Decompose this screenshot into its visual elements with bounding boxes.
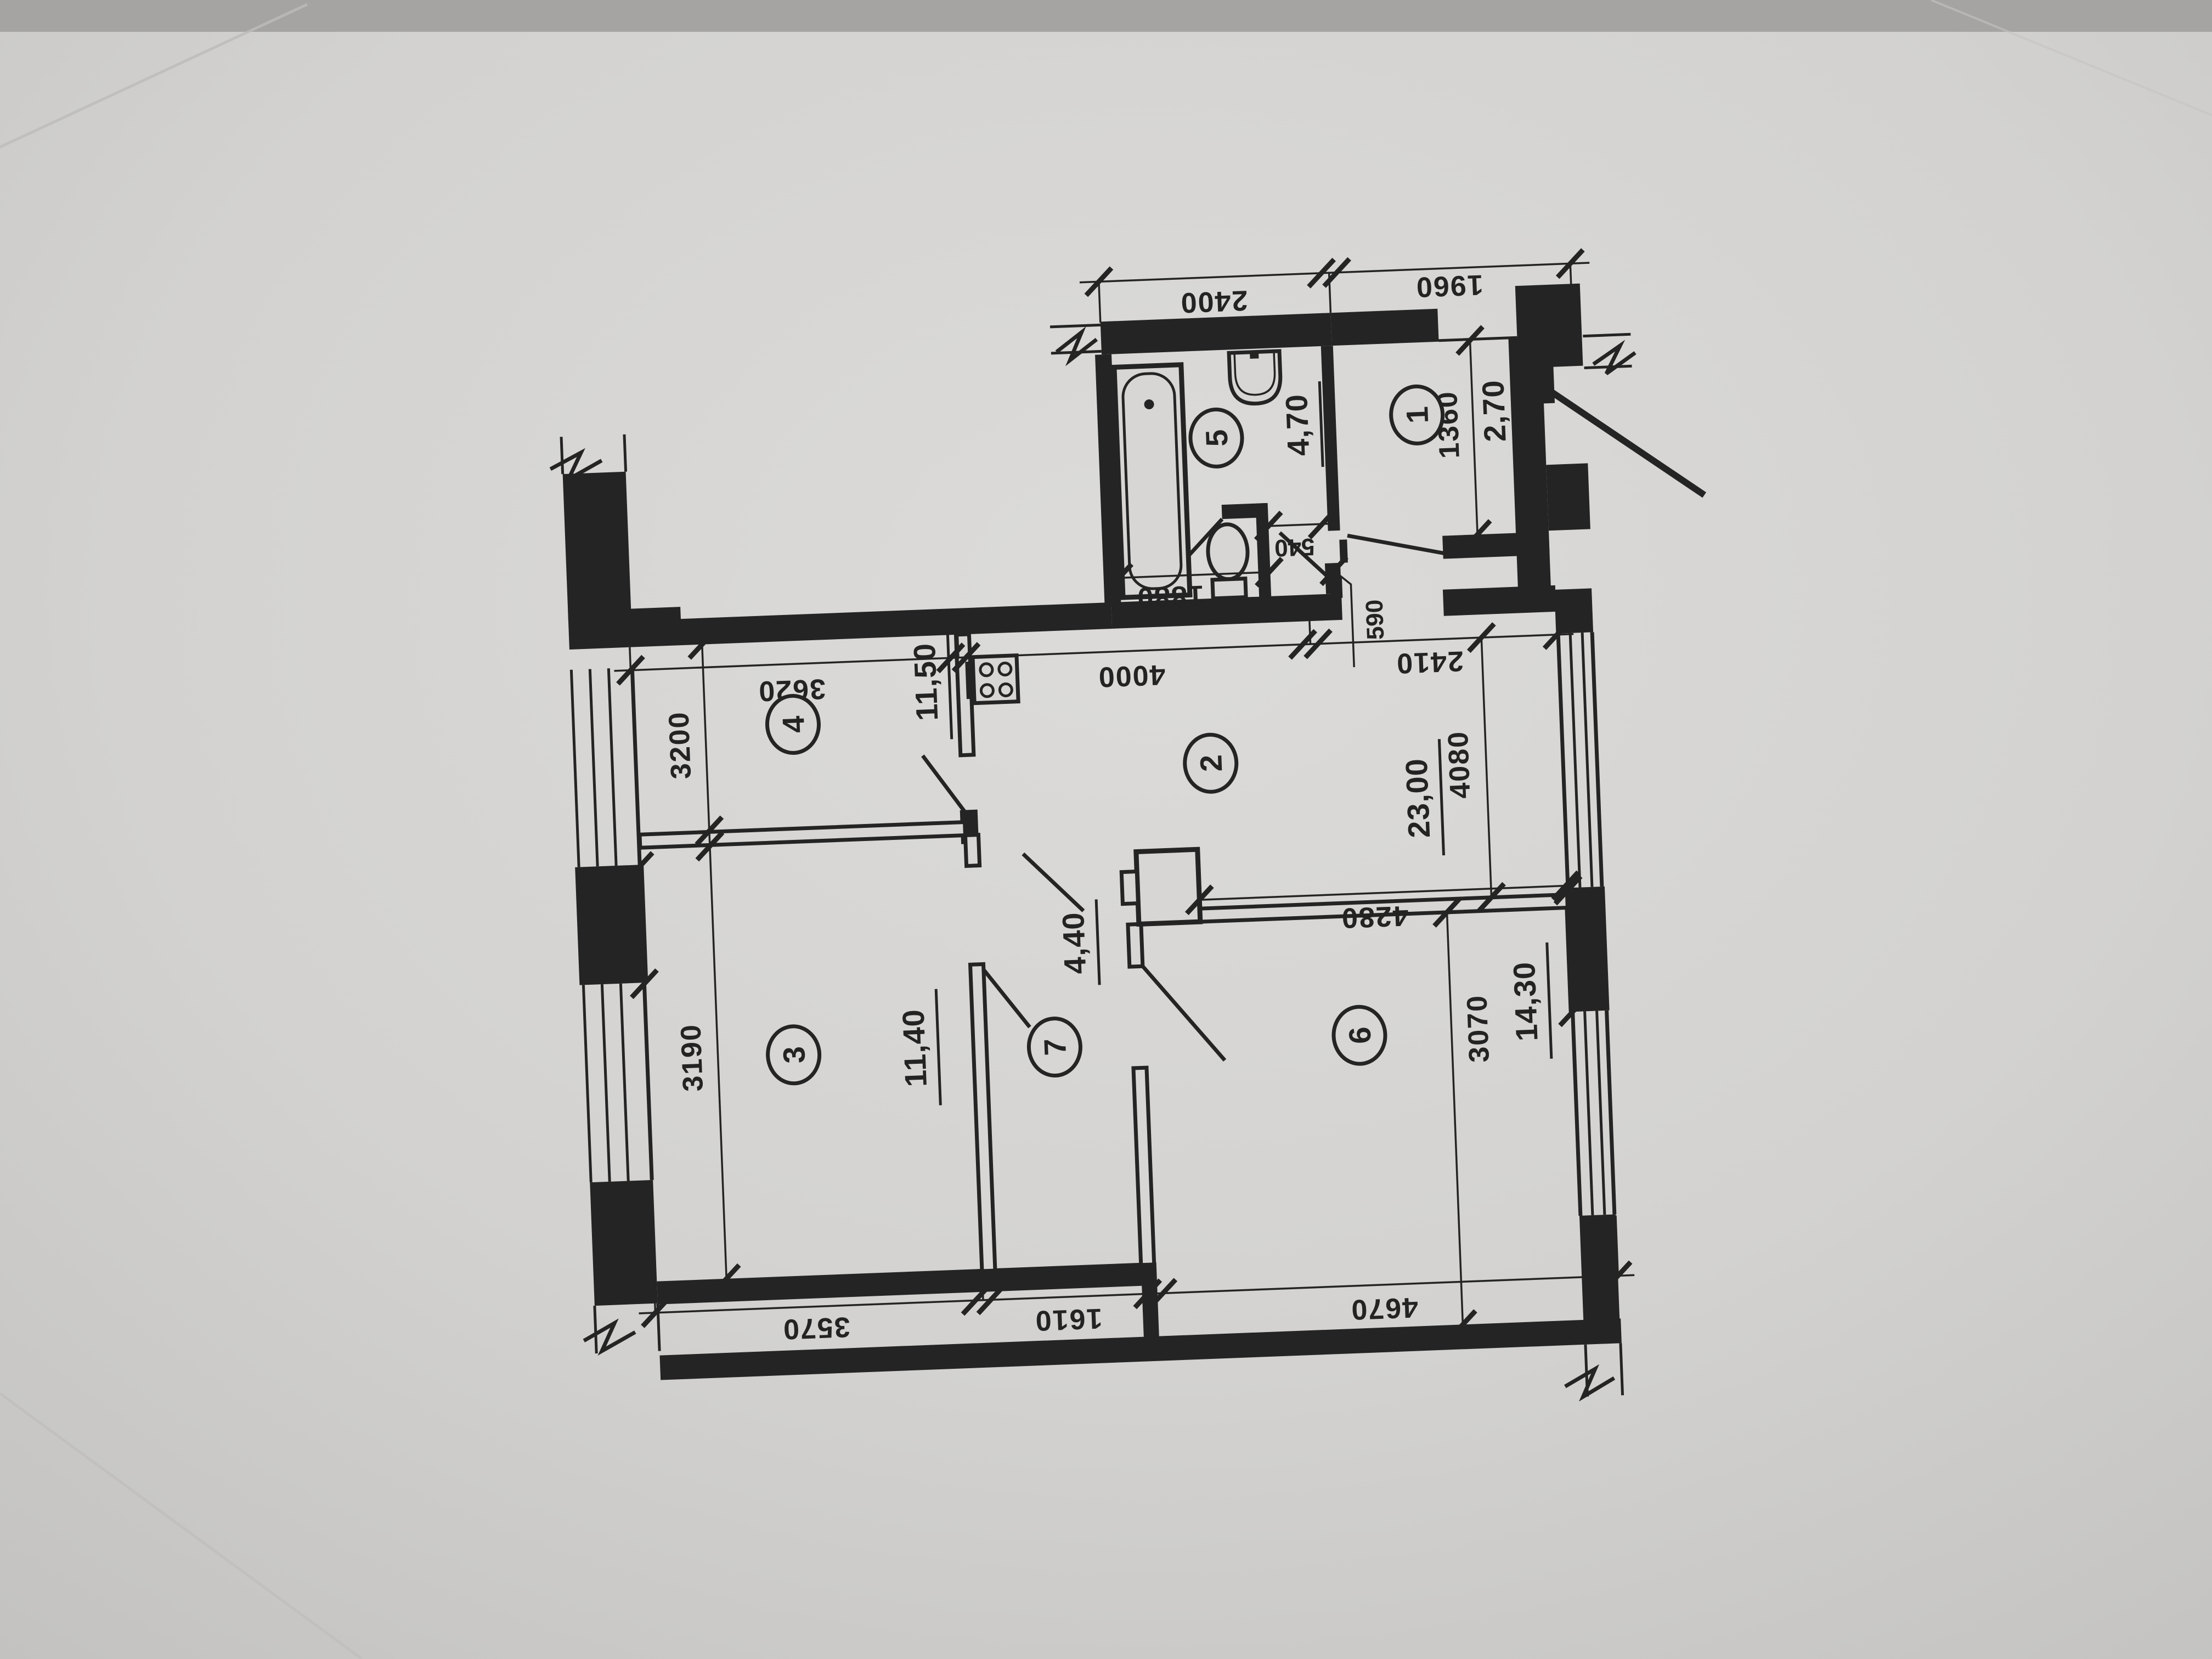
dim-4670: 4670 (1350, 1291, 1419, 1325)
room-3-number: 3 (767, 1025, 821, 1085)
dim-590-label: 590 (1361, 599, 1390, 640)
wall-upper-bottom-r (1443, 585, 1556, 616)
wall-room3-corridor-a (965, 835, 979, 866)
dim-4280-label: 4280 (1340, 900, 1409, 934)
svg-text:6: 6 (1342, 1026, 1377, 1045)
wall-hall-bottom-r (1442, 532, 1549, 558)
room-5-number: 5 (1189, 409, 1243, 468)
dim-1880-label: 1880 (1136, 579, 1205, 613)
stove-icon (965, 656, 1018, 704)
paper-sheet (0, 0, 2212, 1659)
wall-right-pier (1564, 887, 1610, 1012)
table-edge-shadow (0, 0, 2212, 32)
wall-cut-line (1050, 325, 1101, 327)
dim-3570: 3570 (782, 1311, 851, 1345)
svg-text:3: 3 (776, 1046, 811, 1064)
svg-text:2,70: 2,70 (1475, 379, 1512, 442)
room-6-number: 6 (1333, 1006, 1386, 1065)
svg-text:14,30: 14,30 (1506, 961, 1544, 1042)
ventilation-shaft-ext (1121, 872, 1138, 904)
photo-of-floor-plan: 2400 1960 3620 4000 2410 (0, 0, 2212, 1659)
wall-cut-line (624, 435, 626, 472)
wall-left-lower (590, 1180, 658, 1306)
wall-left-upper (563, 472, 631, 623)
wall-cut-line (1583, 334, 1630, 336)
dim-2410: 2410 (1395, 645, 1464, 679)
svg-text:4,70: 4,70 (1279, 393, 1316, 456)
svg-text:4,40: 4,40 (1056, 911, 1092, 974)
wall-cut-line (561, 437, 563, 474)
dim-3200: 3200 (663, 710, 697, 780)
dim-1610: 1610 (1034, 1302, 1103, 1337)
wall-left-pier (575, 865, 648, 985)
bathtub-icon (1114, 365, 1190, 597)
wall-right-lower (1579, 1215, 1620, 1321)
dim-3190: 3190 (675, 1023, 709, 1092)
wall-pier-right-of-hall (1546, 463, 1590, 531)
toilet-icon (1207, 523, 1249, 599)
svg-text:23,00: 23,00 (1399, 758, 1437, 838)
washbasin-icon (1229, 351, 1282, 404)
wall-top-hall (1330, 309, 1438, 346)
svg-text:11,50: 11,50 (907, 642, 944, 721)
room-7-number: 7 (1028, 1018, 1081, 1077)
svg-text:5: 5 (1199, 429, 1234, 448)
room-1-number: 1 (1390, 386, 1444, 445)
svg-text:11,40: 11,40 (896, 1008, 933, 1087)
dim-4080: 4080 (1442, 730, 1477, 799)
room-2-number: 2 (1184, 733, 1238, 793)
svg-text:2: 2 (1193, 754, 1228, 772)
svg-text:1: 1 (1400, 406, 1435, 425)
svg-text:4: 4 (776, 715, 811, 734)
room-4-number: 4 (766, 695, 820, 754)
dim-4000: 4000 (1097, 658, 1166, 693)
dim-2400: 2400 (1180, 284, 1249, 319)
dim-3070: 3070 (1461, 994, 1496, 1063)
wall-cut-line (595, 1306, 596, 1353)
dim-1960: 1960 (1415, 269, 1484, 303)
wall-corridor-room6-a (1128, 924, 1143, 967)
svg-text:7: 7 (1037, 1038, 1073, 1057)
